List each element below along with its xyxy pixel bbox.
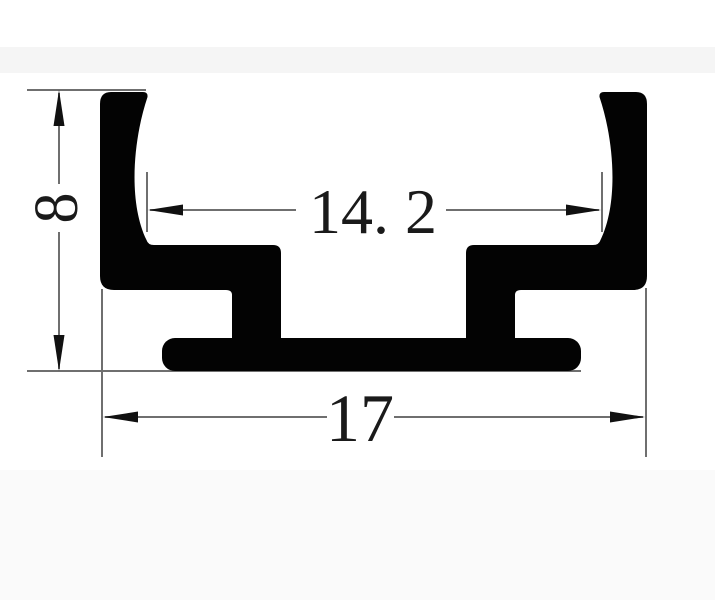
arrow-opening-left-icon <box>148 205 183 216</box>
arrow-overall-left-icon <box>103 412 138 423</box>
arrow-height-down-icon <box>54 335 65 371</box>
profile-base-bar <box>162 338 581 371</box>
scan-band-top <box>0 47 715 73</box>
arrow-height-up-icon <box>54 90 65 126</box>
arrow-opening-right-icon <box>566 205 601 216</box>
dim-opening-width-label: 14. 2 <box>309 176 437 247</box>
dimension-labels: 8 14. 2 17 <box>23 176 437 456</box>
scan-band-bottom <box>0 470 715 600</box>
profile-left-wall <box>100 92 281 342</box>
dim-overall-width-label: 17 <box>326 380 394 456</box>
arrow-overall-right-icon <box>610 412 645 423</box>
profile-cross-section-drawing: 8 14. 2 17 <box>0 0 715 612</box>
profile-right-wall <box>466 92 647 342</box>
drawing-canvas: 8 14. 2 17 <box>0 0 715 612</box>
dim-height-label: 8 <box>23 193 91 224</box>
